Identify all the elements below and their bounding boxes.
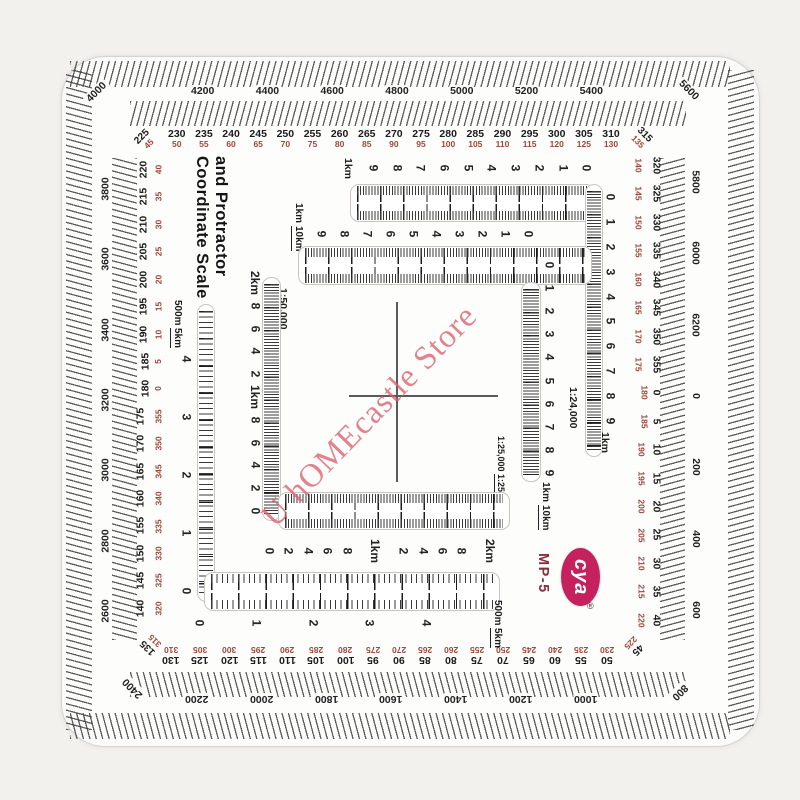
degree-pair: 120300 [221,645,239,665]
scale-number: 4 [542,354,556,361]
outer-tick-band-bottom [70,713,730,739]
scale-number: 4 [179,356,193,363]
scale-25k-h-unit: 1km 10km [293,203,304,251]
scale-number: 1 [542,285,556,292]
outer-tick-band-right [728,70,754,730]
degree-pair: 350170 [631,331,665,342]
mils-number: 2800 [100,528,112,553]
degree-pair: 170350 [132,438,166,449]
mils-number: 200 [690,458,702,478]
scale-24k-h-numbers: 9876543210 [370,156,590,180]
scale-number: 6 [542,400,556,407]
mils-number: 1600 [378,693,403,705]
degree-pair: 300120 [548,129,566,149]
mils-number: 5200 [514,85,539,97]
degree-pair: 145325 [132,575,166,586]
mils-number: 0 [690,392,702,400]
scale-10k-v-numbers: 43210 [176,352,196,598]
scale-50k-h-numbers: 024681km24682km [266,538,502,564]
scale-number: 0 [542,262,556,269]
scale-25k-v-unit: 1km 10km [540,482,551,530]
mils-number: 6000 [690,241,702,266]
scale-24k-label: 1:24,000 [567,387,579,428]
scale-number: 4 [416,548,430,555]
scale-number: 2 [306,620,320,627]
scale-number: 0 [192,620,206,627]
scale-10k-v-slot [197,304,215,602]
scale-number: 1 [249,620,263,627]
mils-scale-bottom: 2200200018001600140012001000 [184,690,598,708]
degree-pair: 95275 [366,645,380,665]
scale-number: 2 [542,308,556,315]
degree-pair: 19515 [135,301,164,312]
degree-pair: 21535 [135,191,164,202]
scale-number: 6 [435,548,449,555]
scale-number: 5 [461,165,475,172]
degree-pair: 310130 [602,129,620,149]
degree-pair: 23555 [195,129,213,149]
scale-number: 6 [321,548,335,555]
scale-number: 0 [522,231,536,238]
degree-pair: 355175 [631,359,665,370]
scale-number: 6 [248,325,262,332]
degree-pair: 160340 [132,493,166,504]
degree-pair: 115295 [250,645,267,665]
mils-number: 4200 [190,85,215,97]
degree-pair: 165345 [132,466,166,477]
scale-number: 8 [248,416,262,423]
scale-number: 5 [406,231,420,238]
degree-pair: 150330 [132,548,166,559]
scale-number: 3 [179,414,193,421]
scale-number: 3 [542,331,556,338]
scale-number: 6 [248,439,262,446]
scale-number: 8 [542,447,556,454]
crosshair-horizontal-line [349,395,498,397]
scale-number: 4 [603,293,617,300]
label-numerator: 1:25,000 [496,436,506,472]
outer-tick-band-left [66,70,92,730]
scale-number: 2 [248,485,262,492]
degree-pair: 335155 [631,245,665,256]
scale-number: 6 [437,165,451,172]
degree-scale-bottom: 1303101253051203001152951102901052851002… [162,640,614,670]
scale-25k-h-numbers: 9876543210 [318,222,532,246]
degree-pair: 325145 [631,188,665,199]
scale-number: 9 [314,231,328,238]
degree-pair: 20020 [135,274,164,285]
degree-pair: 25575 [304,129,322,149]
scale-number: 4 [248,462,262,469]
degree-pair: 65245 [522,645,536,665]
degree-pair: 110290 [279,645,296,665]
scale-50k-v-slot [262,277,281,521]
scale-number: 0 [248,508,262,515]
brand-name: cya [569,559,592,595]
degree-pair: 345165 [631,302,665,313]
mils-number: 400 [690,529,702,549]
model-number: MP-5 [535,553,551,594]
unit-numerator: 500m [492,600,503,626]
degree-pair: 1855 [137,356,161,367]
mils-number: 2200 [184,693,209,705]
inner-tick-band-top [130,101,686,126]
scale-number: 2km [248,271,262,295]
protractor-photo: 4200440046004800500052005400 58006000620… [0,0,800,800]
mils-scale-top: 4200440046004800500052005400 [190,83,604,99]
scale-number: 8 [340,548,354,555]
unit-numerator: 1km [293,203,304,223]
scale-24k-h-slot [350,184,595,222]
scale-number: 4 [420,620,434,627]
degree-pair: 20525 [135,246,164,257]
degree-pair: 23050 [168,129,186,149]
mils-number: 3000 [100,458,112,483]
scale-10k-h-numbers: 01234 [196,610,430,636]
degree-pair: 20200 [634,501,662,512]
degree-pair: 26080 [331,129,349,149]
scale-number: 1 [556,165,570,172]
mils-number: 3400 [100,317,112,342]
mils-number: 4600 [320,85,345,97]
mils-number: 600 [690,600,702,620]
scale-number: 2 [282,548,296,555]
mils-number: 5800 [690,169,702,194]
degree-pair: 27090 [385,129,403,149]
degree-pair: 85265 [418,645,432,665]
scale-number: 1km [248,385,262,409]
scale-number: 5 [603,318,617,325]
scale-number: 2 [248,371,262,378]
degree-pair: 90270 [392,645,406,665]
degree-pair: 140320 [132,603,166,614]
degree-pair: 5185 [637,416,659,427]
degree-pair: 22040 [135,164,164,175]
scale-number: 4 [430,231,444,238]
mils-number: 1400 [443,693,468,705]
degree-pair: 125305 [191,645,209,665]
scale-number: 8 [337,231,351,238]
scale-24k-h-unit: 1km [342,158,354,179]
mils-number: 2000 [249,693,274,705]
degree-pair: 21030 [135,219,164,230]
degree-pair: 10190 [634,444,662,455]
scale-number: 0 [262,548,276,555]
mils-number: 3600 [100,247,112,272]
scale-number: 2km [483,539,497,563]
scale-number: 2 [179,472,193,479]
scale-number: 0 [603,194,617,201]
scale-24k-v-unit: 1km [599,432,611,453]
degree-pair: 55235 [574,645,588,665]
degree-pair: 24565 [249,129,267,149]
scale-number: 1 [499,231,513,238]
degree-pair: 60240 [548,645,562,665]
scale-50k-h-slot [278,492,510,530]
scale-number: 8 [455,548,469,555]
scale-number: 0 [580,165,594,172]
scale-25k-v-slot [521,282,541,482]
degree-pair: 290110 [494,129,512,149]
scale-number: 4 [485,165,499,172]
scale-10k-v-unit: 500m 5km [172,300,183,348]
brand-logo-oval: cya [561,548,600,606]
scale-number: 6 [603,343,617,350]
degree-scale-left: 2204021535210302052520020195151901018551… [132,164,166,614]
degree-pair: 25205 [634,529,662,540]
scale-number: 3 [453,231,467,238]
degree-scale-right: 3201403251453301503351553401603451653501… [631,160,665,626]
scale-10k-h-slot [204,572,500,611]
scale-number: 7 [603,368,617,375]
scale-number: 9 [542,470,556,477]
degree-pair: 330150 [631,217,665,228]
scale-number: 2 [476,231,490,238]
scale-number: 2 [603,243,617,250]
mils-number: 1200 [508,693,533,705]
mils-number: 6200 [690,312,702,337]
degree-pair: 285105 [467,129,485,149]
degree-pair: 305125 [575,129,593,149]
degree-pair: 24060 [222,129,240,149]
degree-pair: 40220 [634,615,662,626]
degree-pair: 100280 [337,645,355,665]
scale-number: 1km [368,539,382,563]
unit-denominator: 10km [538,505,551,531]
degree-pair: 155335 [132,520,166,531]
scale-number: 1 [179,530,193,537]
degree-scale-top: 2305023555240602456525070255752608026585… [168,125,620,153]
degree-pair: 340160 [631,274,665,285]
scale-number: 7 [360,231,374,238]
degree-pair: 26585 [358,129,376,149]
scale-24k-v-numbers: 0123456789 [601,190,619,428]
degree-pair: 30210 [634,558,662,569]
mils-number: 5000 [449,85,474,97]
unit-numerator: 500m [172,300,183,326]
scale-number: 9 [366,165,380,172]
mils-number: 3200 [100,387,112,412]
scale-number: 2 [396,548,410,555]
mils-number: 4800 [384,85,409,97]
degree-pair: 175355 [132,411,166,422]
unit-denominator: 5km [170,328,183,348]
degree-pair: 15195 [634,473,662,484]
degree-pair: 280100 [439,129,457,149]
degree-pair: 50230 [600,645,614,665]
scale-number: 3 [508,165,522,172]
mils-number: 2600 [100,598,112,623]
degree-pair: 130310 [162,645,180,665]
scale-number: 3 [603,268,617,275]
degree-pair: 27595 [412,129,430,149]
mils-number: 4400 [255,85,280,97]
scale-25k-v-numbers: 0123456789 [540,258,558,480]
degree-pair: 295115 [521,129,539,149]
mils-number: 1000 [573,693,598,705]
scale-10k-h-unit: 500m 5km [492,600,503,648]
scale-number: 8 [248,302,262,309]
mils-number: 1800 [314,693,339,705]
mils-scale-right: 5800600062000200400600 [684,176,708,616]
registered-trademark-icon: ® [587,601,594,611]
scale-number: 8 [390,165,404,172]
scale-number: 2 [532,165,546,172]
scale-number: 8 [603,393,617,400]
scale-number: 5 [542,377,556,384]
scale-number: 7 [542,423,556,430]
mils-number: 5400 [579,85,604,97]
scale-number: 3 [363,620,377,627]
degree-pair: 19010 [135,329,164,340]
crosshair-vertical-line [396,302,398,482]
scale-number: 4 [248,348,262,355]
scale-number: 4 [301,548,315,555]
scale-number: 9 [603,418,617,425]
mils-scale-left: 3800360034003200300028002600 [94,183,118,617]
scale-number: 6 [383,231,397,238]
degree-pair: 0180 [637,387,659,398]
degree-pair: 80260 [444,645,458,665]
scale-number: 1 [603,219,617,226]
degree-pair: 75255 [470,645,484,665]
degree-pair: 25070 [277,129,295,149]
degree-pair: 105285 [307,645,325,665]
scale-number: 0 [179,588,193,595]
unit-denominator: 5km [490,628,503,648]
scale-number: 7 [414,165,428,172]
degree-pair: 1800 [137,383,161,394]
mils-number: 3800 [100,176,112,201]
unit-numerator: 1km [540,482,551,502]
degree-pair: 35215 [634,586,662,597]
degree-pair: 320140 [631,160,665,171]
